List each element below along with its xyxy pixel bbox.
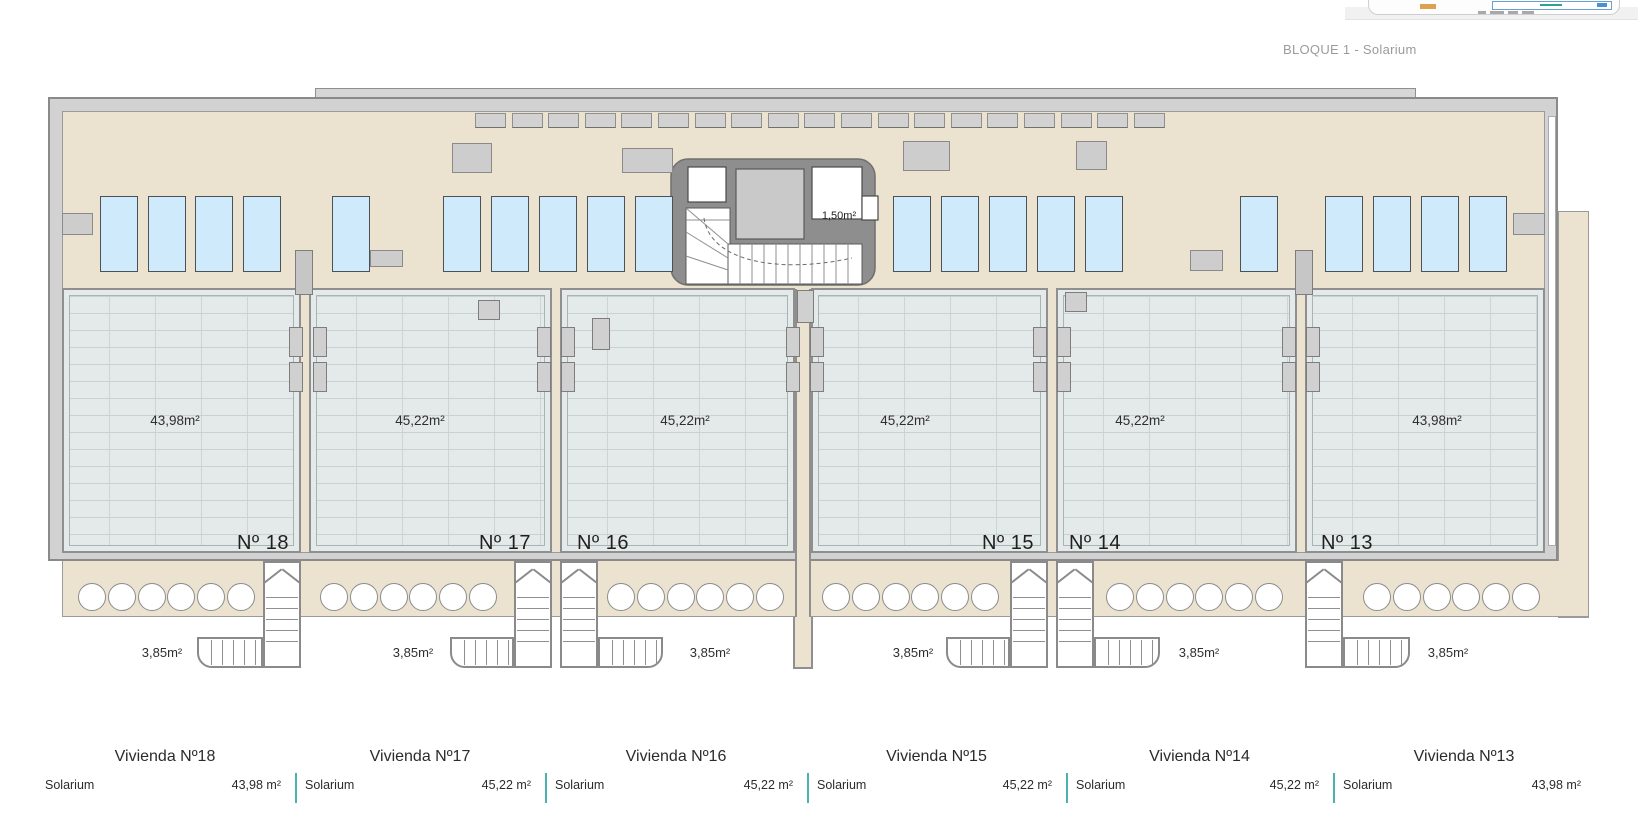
chimney-vent	[1306, 327, 1320, 357]
round-paver	[1106, 583, 1134, 611]
round-paver	[1482, 583, 1510, 611]
stair-direction-mark	[515, 568, 534, 583]
round-paver	[726, 583, 754, 611]
wall-planter	[1513, 213, 1545, 235]
legend-column-title: Vivienda Nº15	[807, 748, 1066, 766]
stair-shaft	[1056, 561, 1094, 668]
parapet-vent	[621, 113, 652, 128]
legend-area-value: 43,98 m²	[1333, 778, 1581, 792]
stair-direction-mark	[561, 568, 580, 583]
sunbed-lounger	[100, 196, 138, 272]
planter	[903, 141, 950, 171]
stair-treads	[1059, 587, 1091, 643]
round-paver	[637, 583, 665, 611]
unit-area-label: 43,98m²	[1377, 413, 1497, 428]
sunbed-lounger	[1469, 196, 1507, 272]
stair-shaft	[514, 561, 552, 668]
stair-run-treads	[201, 640, 259, 665]
stair-run-treads	[454, 640, 510, 665]
planter	[622, 148, 673, 173]
parapet-vent	[768, 113, 799, 128]
parapet-vent	[804, 113, 835, 128]
chimney-vent	[313, 362, 327, 392]
stair-area-label: 3,85m²	[1408, 645, 1488, 660]
unit-area-label: 45,22m²	[1080, 413, 1200, 428]
round-paver	[667, 583, 695, 611]
round-paver	[1225, 583, 1253, 611]
legend-column-title: Vivienda Nº14	[1066, 748, 1333, 766]
round-paver	[852, 583, 880, 611]
stair-direction-mark	[1057, 568, 1076, 583]
round-paver	[380, 583, 408, 611]
parapet-vent	[1024, 113, 1055, 128]
stair-treads	[1013, 587, 1045, 643]
round-paver	[1452, 583, 1480, 611]
stair-run	[1343, 637, 1410, 668]
stair-run	[450, 637, 514, 668]
parapet-vent	[512, 113, 543, 128]
round-paver	[439, 583, 467, 611]
unit-number-label: Nº 17	[460, 532, 550, 555]
round-paver	[469, 583, 497, 611]
stair-direction-mark	[579, 568, 598, 583]
planter	[452, 143, 492, 173]
parapet-vent	[695, 113, 726, 128]
center-wall-stem	[793, 617, 813, 669]
parapet-vent	[548, 113, 579, 128]
stair-direction-mark	[264, 568, 283, 583]
round-paver	[409, 583, 437, 611]
round-paver	[320, 583, 348, 611]
stair-direction-mark	[1011, 568, 1030, 583]
sunbed-lounger	[1037, 196, 1075, 272]
pillar	[295, 250, 313, 295]
chimney-vent	[786, 327, 800, 357]
chimney-vent	[289, 327, 303, 357]
chimney-cap	[797, 290, 814, 323]
round-paver	[1393, 583, 1421, 611]
round-paver	[882, 583, 910, 611]
legend-divider	[807, 773, 809, 803]
wall-planter	[1190, 250, 1223, 271]
parapet-vent	[914, 113, 945, 128]
wall-planter	[62, 213, 93, 235]
round-paver	[1423, 583, 1451, 611]
stair-run-treads	[950, 640, 1006, 665]
floor-plan: 1,50m² 43,98m²Nº 1845,22m²Nº 1745,22m²Nº…	[0, 0, 1638, 700]
roof-vent	[592, 318, 610, 350]
unit-number-label: Nº 18	[218, 532, 308, 555]
parapet-vent	[878, 113, 909, 128]
round-paver	[1255, 583, 1283, 611]
legend-column-title: Vivienda Nº13	[1333, 748, 1595, 766]
round-paver	[1195, 583, 1223, 611]
stair-direction-mark	[1029, 568, 1048, 583]
sunbed-lounger	[1325, 196, 1363, 272]
sunbed-lounger	[1421, 196, 1459, 272]
round-paver	[197, 583, 225, 611]
unit-area-label: 43,98m²	[115, 413, 235, 428]
parapet-vent	[731, 113, 762, 128]
chimney-vent	[537, 327, 551, 357]
round-paver	[756, 583, 784, 611]
chimney-vent	[810, 362, 824, 392]
sunbed-lounger	[332, 196, 370, 272]
chimney-vent	[1033, 327, 1047, 357]
stair-direction-mark	[282, 568, 301, 583]
round-paver	[1363, 583, 1391, 611]
parapet-vent	[1134, 113, 1165, 128]
parapet-vent	[1097, 113, 1128, 128]
roof-vent	[1065, 292, 1087, 312]
sunbed-lounger	[1240, 196, 1278, 272]
sunbed-lounger	[941, 196, 979, 272]
stair-direction-mark	[1306, 568, 1325, 583]
parapet-vent	[475, 113, 506, 128]
round-paver	[971, 583, 999, 611]
wall-planter	[370, 250, 403, 267]
round-paver	[941, 583, 969, 611]
legend-divider	[545, 773, 547, 803]
round-paver	[1166, 583, 1194, 611]
legend-column-title: Vivienda Nº16	[545, 748, 807, 766]
sunbed-lounger	[539, 196, 577, 272]
stair-run-treads	[1347, 640, 1406, 665]
pillar	[1295, 250, 1313, 295]
sunbed-lounger	[195, 196, 233, 272]
sunbed-lounger	[1085, 196, 1123, 272]
legend-area-value: 45,22 m²	[295, 778, 531, 792]
unit-area-label: 45,22m²	[625, 413, 745, 428]
chimney-vent	[810, 327, 824, 357]
stair-area-label: 3,85m²	[670, 645, 750, 660]
chimney-vent	[561, 362, 575, 392]
stair-elevator-core	[670, 158, 882, 286]
sunbed-lounger	[443, 196, 481, 272]
stair-treads	[517, 587, 549, 643]
stair-run-treads	[602, 640, 659, 665]
legend-column-title: Vivienda Nº17	[295, 748, 545, 766]
round-paver	[227, 583, 255, 611]
legend-area-value: 43,98 m²	[35, 778, 281, 792]
chimney-vent	[289, 362, 303, 392]
unit-number-label: Nº 14	[1050, 532, 1140, 555]
wall-cavity	[1548, 116, 1556, 546]
unit-number-label: Nº 16	[558, 532, 648, 555]
stair-shaft	[263, 561, 301, 668]
legend-divider	[1066, 773, 1068, 803]
sunbed-lounger	[635, 196, 673, 272]
sunbed-lounger	[1373, 196, 1411, 272]
stair-direction-mark	[533, 568, 552, 583]
unit-number-label: Nº 15	[963, 532, 1053, 555]
stair-area-label: 3,85m²	[873, 645, 953, 660]
chimney-vent	[1057, 362, 1071, 392]
legend-divider	[295, 773, 297, 803]
round-paver	[696, 583, 724, 611]
round-paver	[350, 583, 378, 611]
round-paver	[1512, 583, 1540, 611]
stair-run	[946, 637, 1010, 668]
round-paver	[607, 583, 635, 611]
round-paver	[78, 583, 106, 611]
stair-treads	[1308, 587, 1340, 643]
round-paver	[167, 583, 195, 611]
stair-area-label: 3,85m²	[122, 645, 202, 660]
unit-area-label: 45,22m²	[360, 413, 480, 428]
sunbed-lounger	[587, 196, 625, 272]
stair-treads	[266, 587, 298, 643]
stair-run-treads	[1098, 640, 1156, 665]
legend-area-value: 45,22 m²	[807, 778, 1052, 792]
sunbed-lounger	[243, 196, 281, 272]
legend-divider	[1333, 773, 1335, 803]
stair-run	[197, 637, 263, 668]
chimney-vent	[1306, 362, 1320, 392]
parapet-vent	[951, 113, 982, 128]
sunbed-lounger	[989, 196, 1027, 272]
chimney-vent	[313, 327, 327, 357]
roof-vent	[478, 300, 500, 320]
stair-direction-mark	[1075, 568, 1094, 583]
stair-treads	[563, 587, 595, 643]
side-terrace-strip	[1558, 211, 1589, 618]
stair-shaft	[1010, 561, 1048, 668]
stair-area-label: 3,85m²	[373, 645, 453, 660]
sunbed-lounger	[491, 196, 529, 272]
stair-shaft	[560, 561, 598, 668]
planter	[1076, 141, 1107, 170]
legend-area-value: 45,22 m²	[1066, 778, 1319, 792]
stair-area-label: 3,85m²	[1159, 645, 1239, 660]
unit-number-label: Nº 13	[1302, 532, 1392, 555]
legend-column-title: Vivienda Nº18	[35, 748, 295, 766]
parapet-vent	[841, 113, 872, 128]
parapet-vent	[987, 113, 1018, 128]
chimney-vent	[537, 362, 551, 392]
round-paver	[1136, 583, 1164, 611]
chimney-vent	[1057, 327, 1071, 357]
legend-area-value: 45,22 m²	[545, 778, 793, 792]
parapet-vent	[585, 113, 616, 128]
chimney-vent	[561, 327, 575, 357]
stair-direction-mark	[1324, 568, 1343, 583]
round-paver	[911, 583, 939, 611]
core-area-label: 1,50m²	[812, 210, 866, 222]
chimney-vent	[786, 362, 800, 392]
sunbed-lounger	[148, 196, 186, 272]
parapet-vent	[1061, 113, 1092, 128]
stair-run	[598, 637, 663, 668]
stair-run	[1094, 637, 1160, 668]
chimney-vent	[1033, 362, 1047, 392]
floor-plan-page: BLOQUE 1 - Solarium	[0, 0, 1638, 840]
chimney-vent	[1282, 327, 1296, 357]
stair-shaft	[1305, 561, 1343, 668]
chimney-vent	[1282, 362, 1296, 392]
round-paver	[822, 583, 850, 611]
unit-area-label: 45,22m²	[845, 413, 965, 428]
round-paver	[108, 583, 136, 611]
round-paver	[138, 583, 166, 611]
parapet-vent	[658, 113, 689, 128]
sunbed-lounger	[893, 196, 931, 272]
